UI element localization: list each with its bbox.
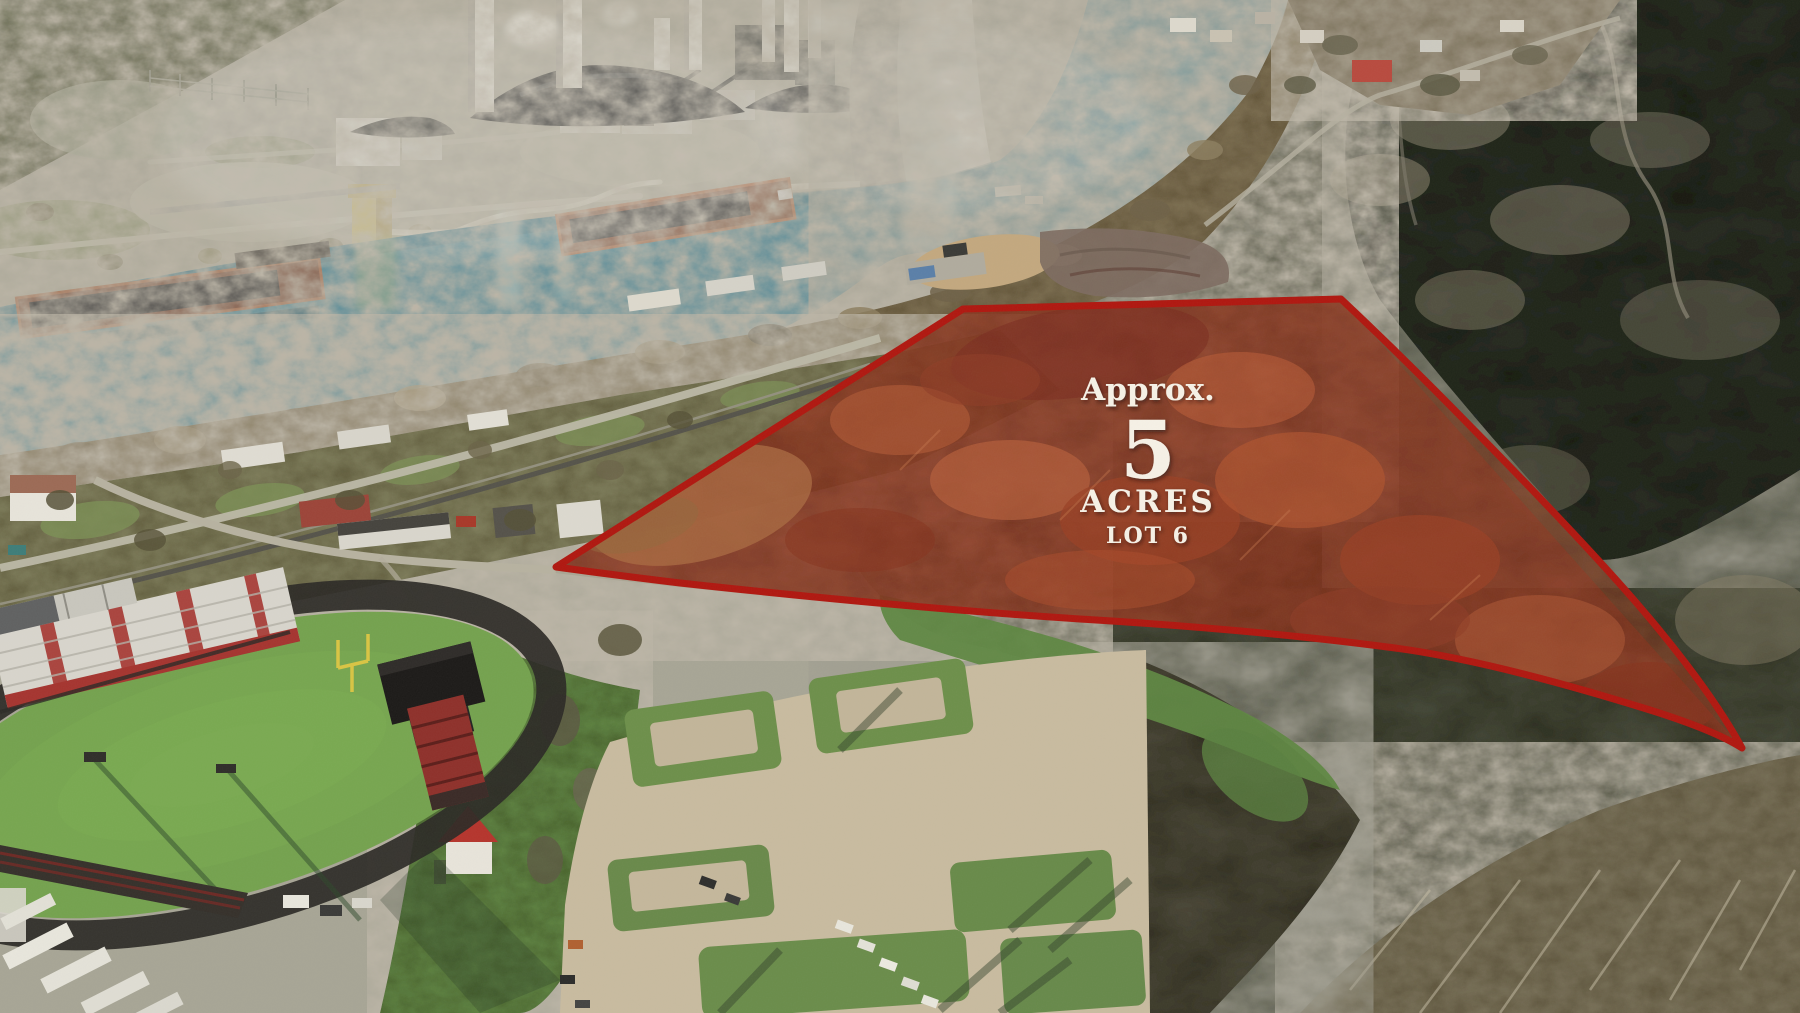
aerial-photo-canvas: Approx. 5 ACRES LOT 6 — [0, 0, 1800, 1013]
atmosphere — [0, 0, 1800, 1013]
film-grain — [0, 0, 1800, 1013]
aerial-photo: Approx. 5 ACRES LOT 6 — [0, 0, 1800, 1013]
